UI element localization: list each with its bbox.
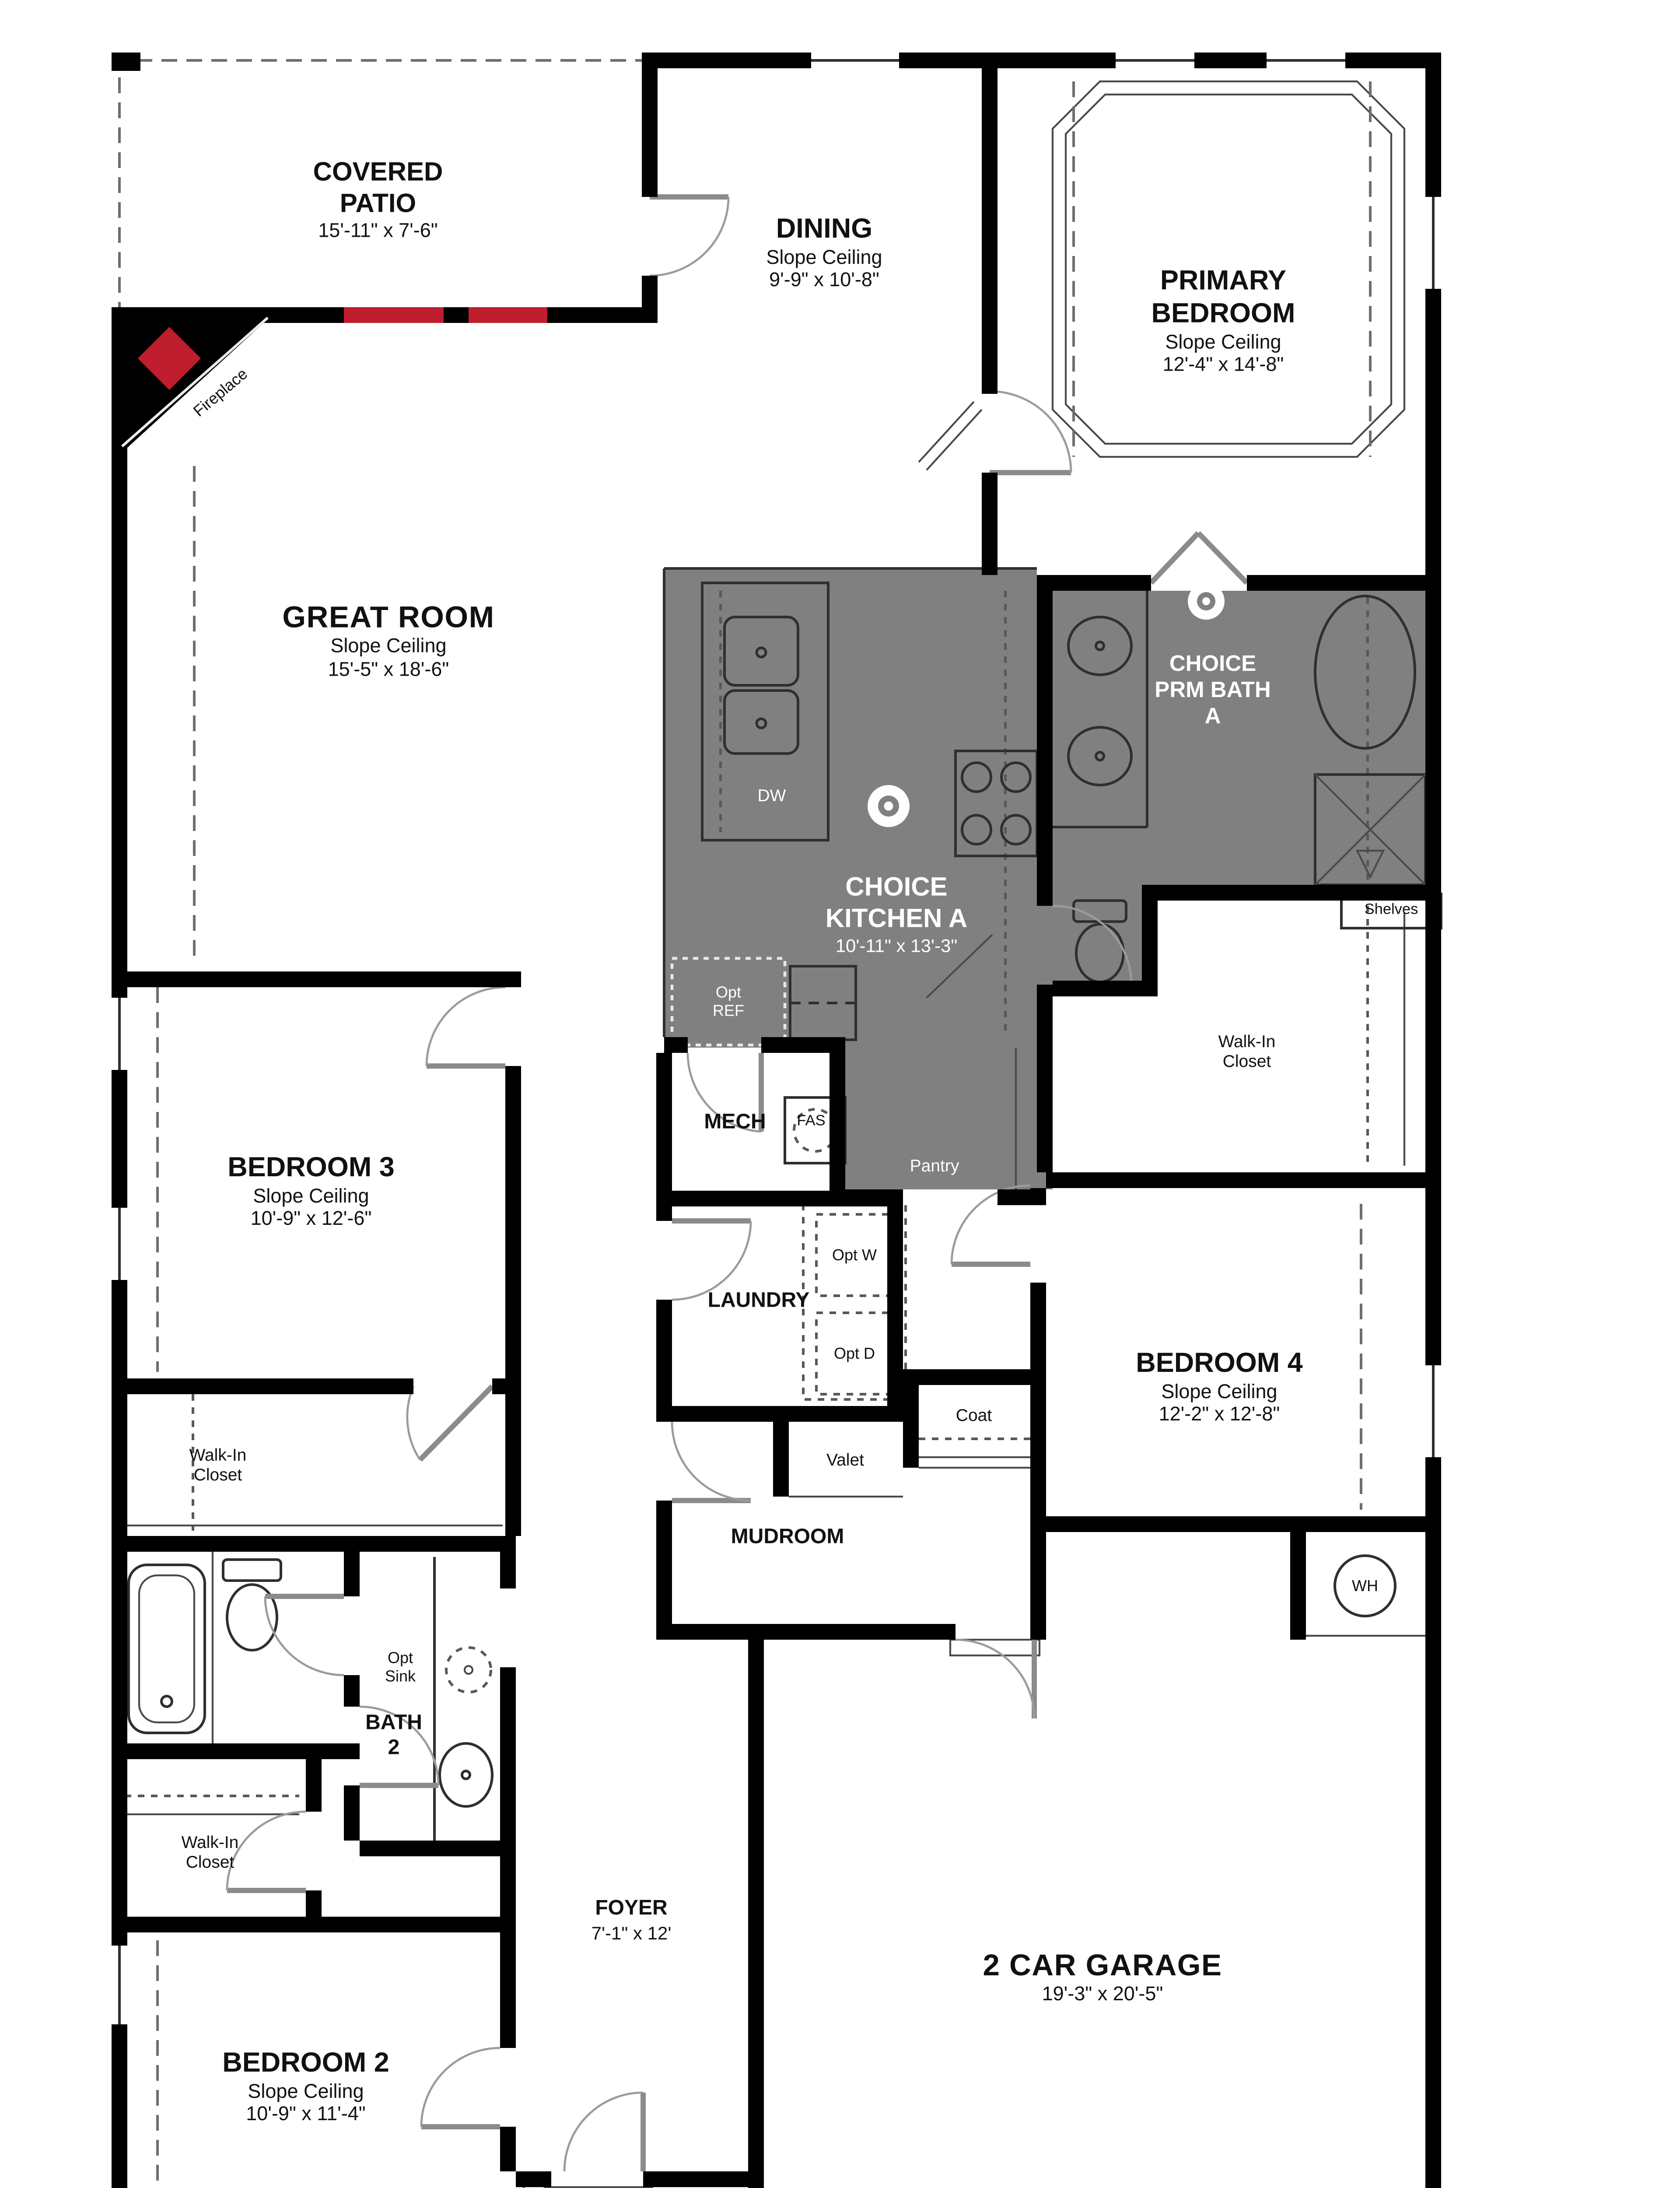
room-label-valet: Valet bbox=[826, 1450, 864, 1470]
kitchen-target-icon bbox=[868, 785, 910, 827]
room-label-bedroom2-closet: Walk-In Closet bbox=[164, 1832, 256, 1872]
room-label-bedroom4: BEDROOM 4 Slope Ceiling 12'-2" x 12'-8" bbox=[1095, 1348, 1344, 1427]
room-label-bedroom3-closet: Walk-In Closet bbox=[172, 1445, 264, 1485]
floorplan-canvas: COVERED PATIO 15'-11" x 7'-6" DINING Slo… bbox=[0, 0, 1680, 2188]
room-label-garage: 2 CAR GARAGE 19'-3" x 20'-5" bbox=[919, 1948, 1286, 2006]
room-label-dining: DINING Slope Ceiling 9'-9" x 10'-8" bbox=[713, 214, 936, 293]
opt-washer-label: Opt W bbox=[831, 1246, 878, 1264]
room-label-pantry: Pantry bbox=[910, 1156, 959, 1176]
room-label-bedroom3: BEDROOM 3 Slope Ceiling 10'-9" x 12'-6" bbox=[186, 1153, 436, 1231]
shelves-label: Shelves bbox=[1365, 902, 1418, 920]
room-label-choice-kitchen: CHOICE KITCHEN A 10'-11" x 13'-3" bbox=[808, 873, 985, 957]
room-label-covered-patio: COVERED PATIO 15'-11" x 7'-6" bbox=[296, 158, 460, 244]
room-label-foyer: FOYER 7'-1" x 12' bbox=[553, 1897, 710, 1944]
room-label-primary-closet: Walk-In Closet bbox=[1201, 1031, 1293, 1072]
opt-ref-label: Opt REF bbox=[700, 983, 757, 1020]
bath-target-icon bbox=[1188, 583, 1225, 620]
room-label-laundry: LAUNDRY bbox=[708, 1290, 810, 1315]
room-label-bedroom2: BEDROOM 2 Slope Ceiling 10'-9" x 11'-4" bbox=[181, 2048, 430, 2127]
fas-label: FAS bbox=[797, 1114, 825, 1132]
room-label-coat: Coat bbox=[956, 1405, 992, 1425]
room-label-mech: MECH bbox=[704, 1112, 766, 1136]
room-label-bath2: BATH 2 bbox=[360, 1712, 428, 1761]
opt-dryer-label: Opt D bbox=[831, 1344, 878, 1363]
room-label-choice-prm-bath: CHOICE PRM BATH A bbox=[1151, 651, 1275, 730]
water-heater-label: WH bbox=[1352, 1577, 1378, 1595]
room-label-great-room: GREAT ROOM Slope Ceiling 15'-5" x 18'-6" bbox=[244, 600, 533, 682]
floorplan-page: COVERED PATIO 15'-11" x 7'-6" DINING Slo… bbox=[0, 0, 1680, 2188]
room-label-primary-bedroom: PRIMARY BEDROOM Slope Ceiling 12'-4" x 1… bbox=[1125, 266, 1322, 378]
opt-sink-label: Opt Sink bbox=[371, 1649, 429, 1686]
room-label-mudroom: MUDROOM bbox=[731, 1526, 844, 1551]
dishwasher-label: DW bbox=[757, 785, 786, 806]
